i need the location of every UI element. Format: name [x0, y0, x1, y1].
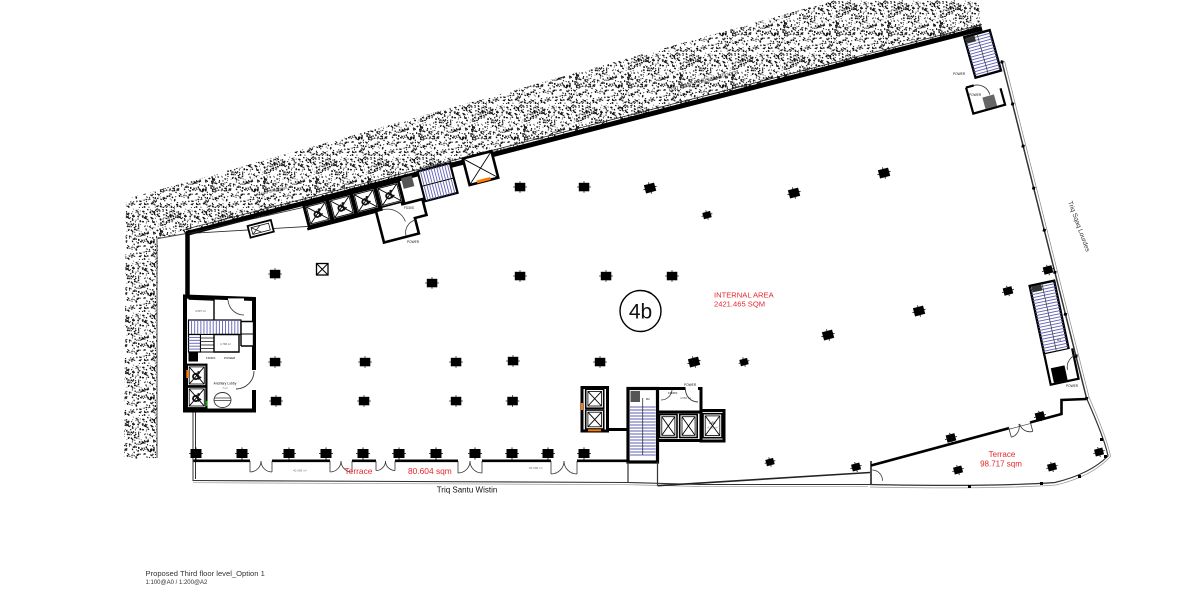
svg-text:82.588 m²: 82.588 m²: [529, 466, 543, 470]
svg-text:7 m²: 7 m²: [222, 386, 227, 390]
svg-text:Ancillary Lobby: Ancillary Lobby: [214, 382, 237, 386]
svg-text:2421.465 SQM: 2421.465 SQM: [714, 300, 765, 309]
svg-text:Terrace: Terrace: [345, 466, 373, 476]
svg-text:POWER: POWER: [1066, 384, 1079, 388]
svg-text:POWER: POWER: [407, 240, 420, 244]
svg-text:FD30S: FD30S: [668, 391, 677, 395]
svg-text:FD30S: FD30S: [404, 206, 414, 210]
svg-text:4.768 m²: 4.768 m²: [220, 342, 231, 346]
svg-text:POWER: POWER: [969, 93, 982, 97]
svg-text:FD30S: FD30S: [206, 356, 215, 360]
svg-text:LAK: LAK: [709, 421, 716, 425]
svg-text:R2: R2: [646, 397, 650, 401]
svg-text:80.604 sqm: 80.604 sqm: [408, 466, 452, 476]
svg-text:Proposed Third floor level_Opt: Proposed Third floor level_Option 1: [146, 569, 265, 578]
svg-text:1:100@A0 / 1:200@A2: 1:100@A0 / 1:200@A2: [146, 580, 209, 586]
svg-text:98.717 sqm: 98.717 sqm: [980, 460, 1022, 469]
svg-text:POWER: POWER: [224, 356, 236, 360]
svg-text:INTERNAL AREA: INTERNAL AREA: [714, 291, 775, 300]
svg-text:4.116 m²: 4.116 m²: [707, 426, 717, 430]
svg-text:4b: 4b: [629, 301, 652, 324]
svg-text:Terrace: Terrace: [989, 450, 1016, 459]
svg-text:Triq Santu Wistin: Triq Santu Wistin: [437, 486, 498, 495]
svg-text:40.998 m²: 40.998 m²: [293, 469, 307, 473]
svg-text:4.597 m²: 4.597 m²: [195, 309, 206, 313]
svg-text:POWER: POWER: [684, 383, 697, 387]
svg-text:POWER: POWER: [953, 72, 966, 76]
svg-text:R3: R3: [1057, 338, 1061, 342]
